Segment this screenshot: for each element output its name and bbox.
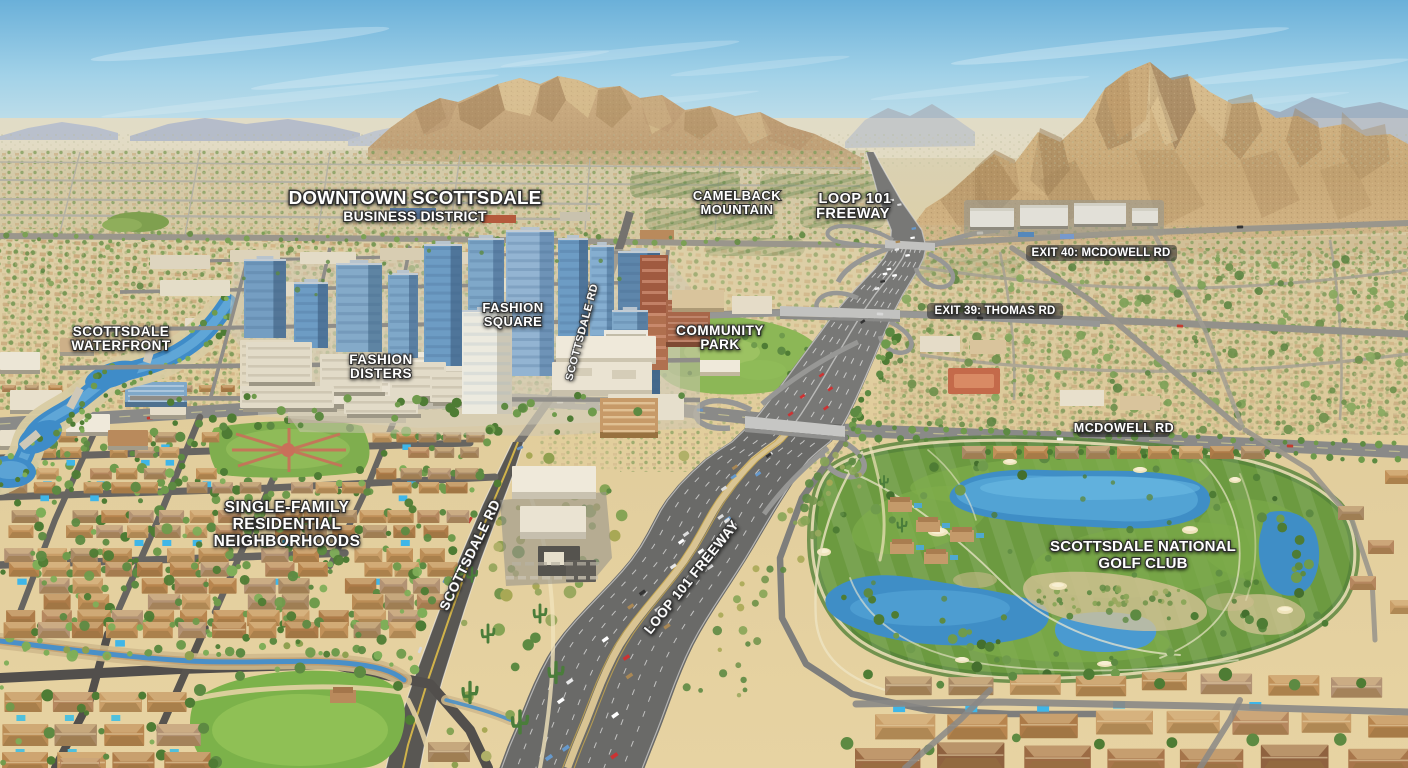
svg-text:FASHION: FASHION (482, 300, 543, 315)
svg-text:COMMUNITY: COMMUNITY (676, 323, 764, 338)
svg-text:PARK: PARK (700, 337, 739, 352)
svg-text:FREEWAY: FREEWAY (816, 206, 890, 222)
svg-text:WATERFRONT: WATERFRONT (71, 338, 170, 353)
svg-text:DOWNTOWN SCOTTSDALE: DOWNTOWN SCOTTSDALE (289, 187, 542, 208)
svg-text:EXIT 40: MCDOWELL RD: EXIT 40: MCDOWELL RD (1032, 247, 1171, 259)
svg-text:SQUARE: SQUARE (484, 314, 543, 329)
svg-text:BUSINESS DISTRICT: BUSINESS DISTRICT (343, 208, 487, 224)
svg-text:CAMELBACK: CAMELBACK (693, 188, 781, 203)
svg-text:GOLF CLUB: GOLF CLUB (1098, 555, 1187, 572)
svg-text:MOUNTAIN: MOUNTAIN (700, 202, 773, 217)
svg-text:RESIDENTIAL: RESIDENTIAL (233, 516, 342, 533)
svg-text:NEIGHBORHOODS: NEIGHBORHOODS (214, 533, 361, 550)
svg-text:SCOTTSDALE: SCOTTSDALE (73, 324, 170, 339)
svg-text:FASHION: FASHION (349, 352, 413, 367)
svg-text:DISTERS: DISTERS (350, 366, 412, 381)
svg-text:EXIT 39: THOMAS RD: EXIT 39: THOMAS RD (935, 305, 1056, 317)
svg-text:SINGLE-FAMILY: SINGLE-FAMILY (225, 499, 350, 516)
svg-text:SCOTTSDALE NATIONAL: SCOTTSDALE NATIONAL (1050, 538, 1236, 555)
svg-text:LOOP 101: LOOP 101 (818, 191, 891, 207)
svg-text:MCDOWELL RD: MCDOWELL RD (1074, 421, 1174, 435)
